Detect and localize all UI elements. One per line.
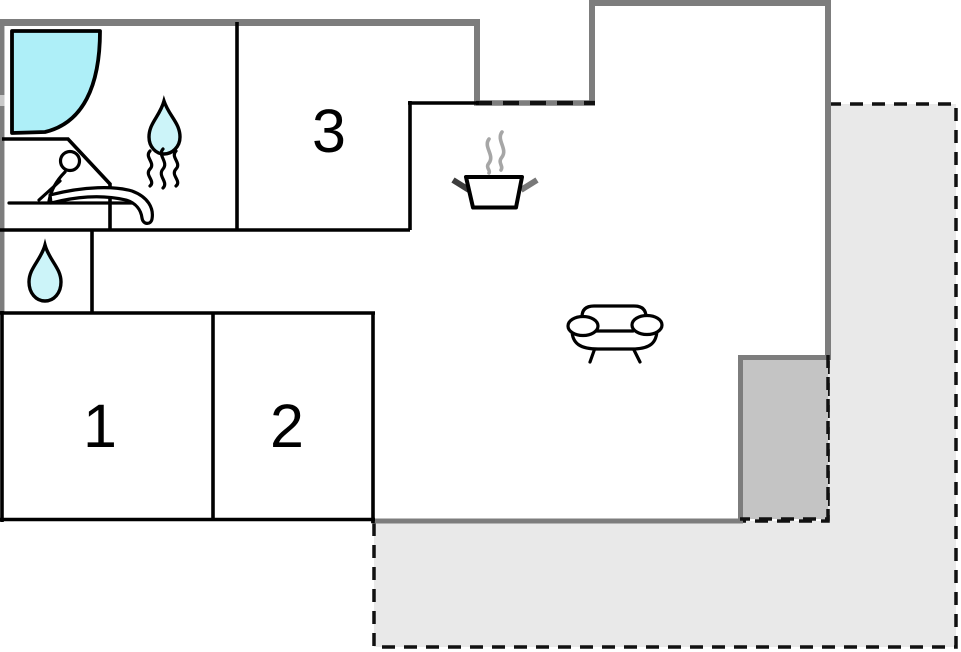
sauna-person-leg bbox=[50, 188, 152, 224]
left-window-marker bbox=[0, 95, 5, 106]
floor-plan: 1 2 3 bbox=[0, 0, 961, 652]
sofa-icon bbox=[568, 306, 662, 362]
pot-body bbox=[466, 177, 522, 208]
outer-walls bbox=[0, 0, 831, 521]
pot-steam-wave bbox=[487, 139, 490, 173]
sauna-icon bbox=[9, 149, 178, 223]
pot-handle-right bbox=[521, 180, 537, 190]
pot-steam-wave bbox=[500, 132, 504, 170]
sauna-steam-wave bbox=[148, 151, 151, 186]
water-drop-icon bbox=[149, 101, 180, 154]
water-drop-icon bbox=[29, 245, 61, 301]
shower-icon bbox=[12, 31, 100, 133]
room-2-label: 2 bbox=[270, 392, 304, 460]
sofa-arm-left bbox=[568, 317, 598, 336]
floor-plan-canvas: 1 2 3 bbox=[0, 0, 961, 652]
room-3-label: 3 bbox=[312, 97, 346, 165]
sauna-steam-wave bbox=[174, 151, 177, 186]
sauna-person-head bbox=[61, 152, 80, 171]
room-1-label: 1 bbox=[83, 392, 117, 460]
covered-terrace-area bbox=[740, 357, 828, 519]
cooking-pot-icon bbox=[453, 132, 537, 208]
sofa-arm-right bbox=[632, 316, 662, 335]
